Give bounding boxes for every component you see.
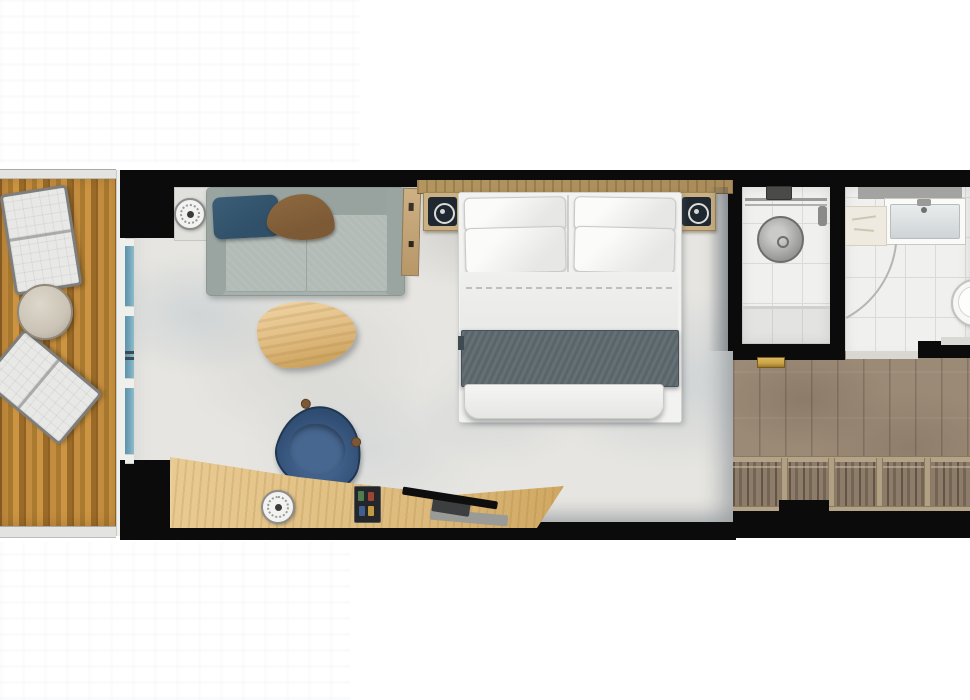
lounger-fold-line (18, 360, 60, 409)
lamp-center (275, 504, 282, 511)
wardrobe-divider (924, 458, 931, 510)
wardrobe-hanging-clothes (733, 462, 970, 508)
hand-shower-icon (818, 206, 827, 226)
bed-pillow (573, 226, 675, 275)
faucet-dot (921, 207, 927, 213)
bed-foot-fold (464, 384, 664, 419)
faded-plan-lines-bottom (0, 542, 350, 700)
rain-shower-head-icon (757, 216, 804, 263)
nightstand-lamp-icon (428, 197, 457, 226)
duvet-stitch-line (466, 287, 672, 289)
wardrobe-rod (733, 466, 970, 468)
bathroom-door-threshold (846, 351, 918, 359)
balcony-round-table (17, 284, 73, 340)
door-swing-arc (836, 238, 920, 326)
mini-bottle (368, 506, 374, 516)
desk-lamp-icon (261, 490, 295, 524)
mini-bottle (358, 491, 364, 501)
wall-block-left-top (120, 170, 174, 238)
nightstand-left (423, 192, 462, 231)
shower-rail (745, 204, 827, 206)
valet-detail (409, 203, 414, 211)
shower-control (766, 186, 792, 200)
shelf-item-line (852, 215, 876, 220)
lamp-center (187, 211, 194, 218)
mini-bottle (368, 492, 374, 501)
entry-door-recess (779, 500, 829, 514)
bed-gray-throw (461, 330, 679, 387)
lamp-center (440, 209, 445, 214)
lounger-fold-line (9, 229, 71, 242)
wardrobe-divider (828, 458, 835, 510)
door-handle-icon (125, 357, 134, 360)
mini-bottle (359, 506, 365, 516)
shower-tray-zone (742, 309, 830, 344)
side-table-lamp-icon (174, 198, 206, 230)
faded-plan-lines-top (0, 0, 360, 162)
valet-shelf (401, 188, 421, 276)
bed-pillow (464, 226, 566, 275)
wardrobe-divider (876, 458, 883, 510)
door-handle-icon (125, 351, 134, 354)
glass-pane-2 (125, 316, 134, 378)
lamp-ring (434, 203, 455, 224)
cabin-floor-plan (0, 0, 970, 700)
duvet (460, 272, 678, 332)
wall-bathroom-left (728, 170, 742, 351)
balcony-railing-bottom (0, 526, 116, 538)
valet-detail (409, 241, 414, 247)
sofa (206, 187, 405, 296)
minibar-tray (354, 486, 381, 523)
nightstand-lamp-icon (682, 197, 711, 226)
glass-pane-3 (125, 388, 134, 454)
bathroom-sill (941, 337, 970, 345)
glass-pane-1 (125, 246, 134, 306)
faucet-icon (917, 199, 931, 206)
throw-tab (458, 336, 464, 350)
gold-threshold (757, 357, 785, 368)
balcony-railing-top (0, 169, 116, 179)
shower-head-center (777, 236, 789, 248)
lamp-ring (688, 203, 709, 224)
lamp-center (694, 209, 699, 214)
wall-hall-bottom (733, 511, 970, 538)
wall-shower-bottom (733, 344, 845, 360)
shelf-item-line (854, 228, 874, 232)
glass-cap-bottom (125, 454, 134, 464)
bed-wall-shadow (708, 187, 728, 351)
